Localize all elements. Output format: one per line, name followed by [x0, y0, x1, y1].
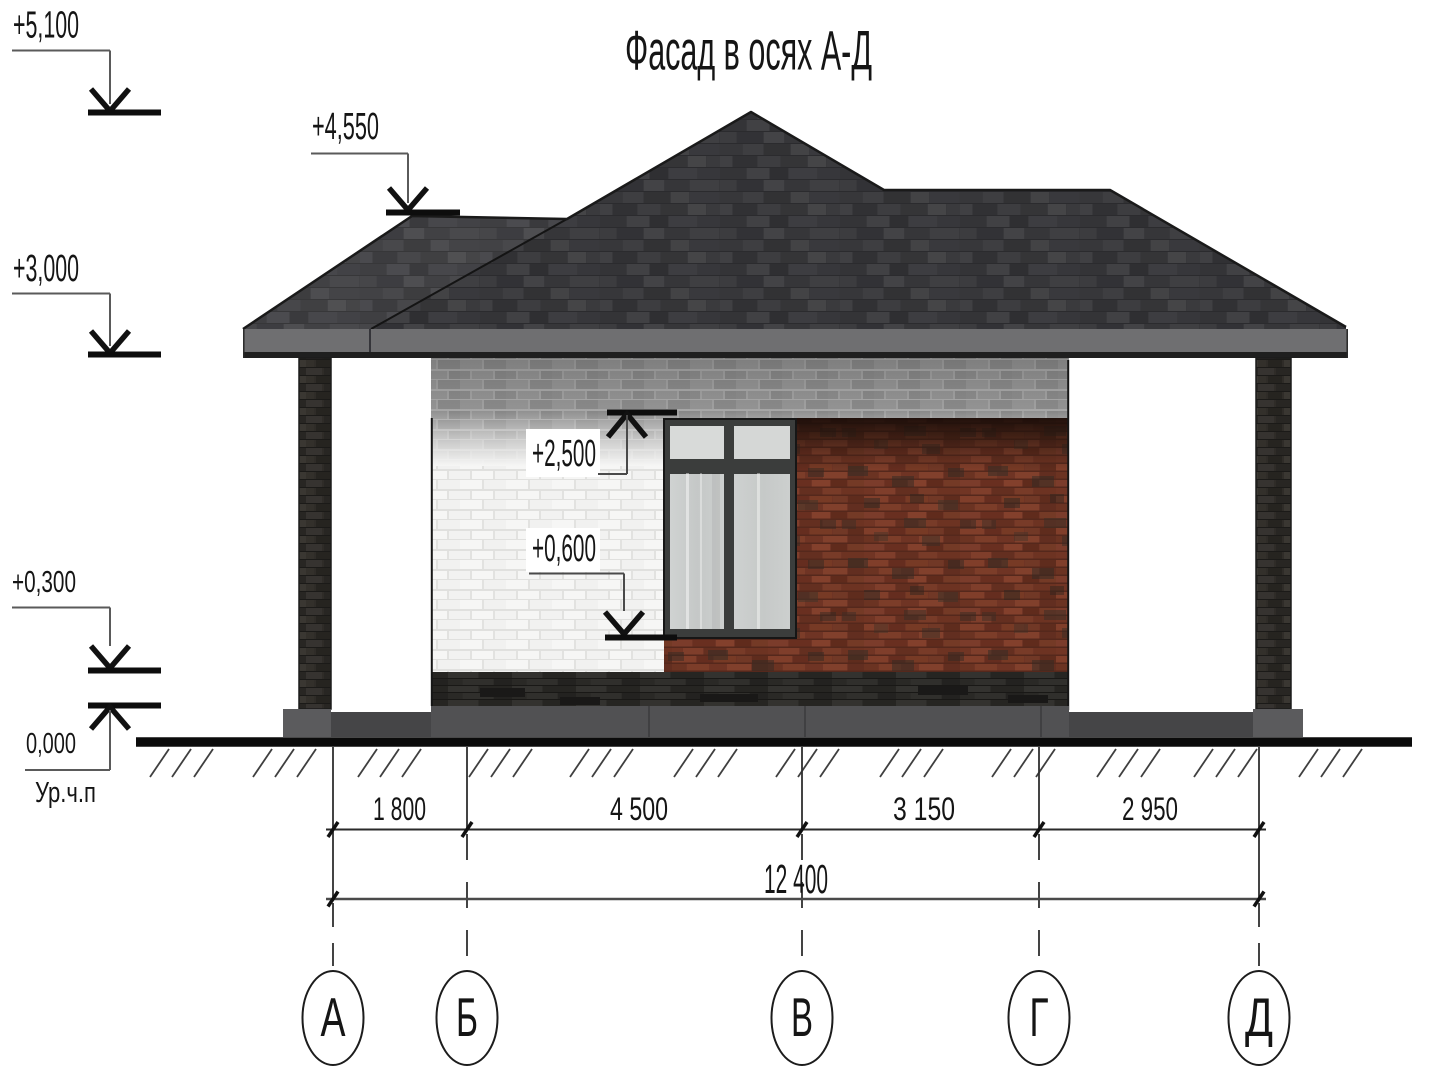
svg-text:1 800: 1 800: [373, 791, 426, 827]
svg-text:12 400: 12 400: [764, 856, 828, 902]
svg-text:+4,550: +4,550: [312, 106, 379, 148]
svg-text:Ур.ч.п: Ур.ч.п: [35, 777, 96, 809]
svg-text:4 500: 4 500: [610, 791, 668, 827]
svg-text:В: В: [791, 986, 813, 1048]
svg-text:+5,100: +5,100: [13, 5, 79, 47]
svg-text:Б: Б: [456, 986, 478, 1048]
svg-text:3 150: 3 150: [893, 791, 955, 827]
svg-text:2 950: 2 950: [1122, 791, 1178, 827]
svg-text:Д: Д: [1245, 986, 1273, 1048]
svg-text:+3,000: +3,000: [13, 248, 79, 290]
svg-text:Г: Г: [1030, 986, 1049, 1048]
svg-text:+0,300: +0,300: [12, 564, 76, 599]
svg-text:0,000: 0,000: [26, 728, 76, 760]
svg-text:А: А: [321, 986, 346, 1048]
svg-text:Фасад в осях А-Д: Фасад в осях А-Д: [625, 19, 872, 82]
svg-text:+0,600: +0,600: [532, 528, 596, 570]
svg-text:+2,500: +2,500: [532, 433, 596, 475]
